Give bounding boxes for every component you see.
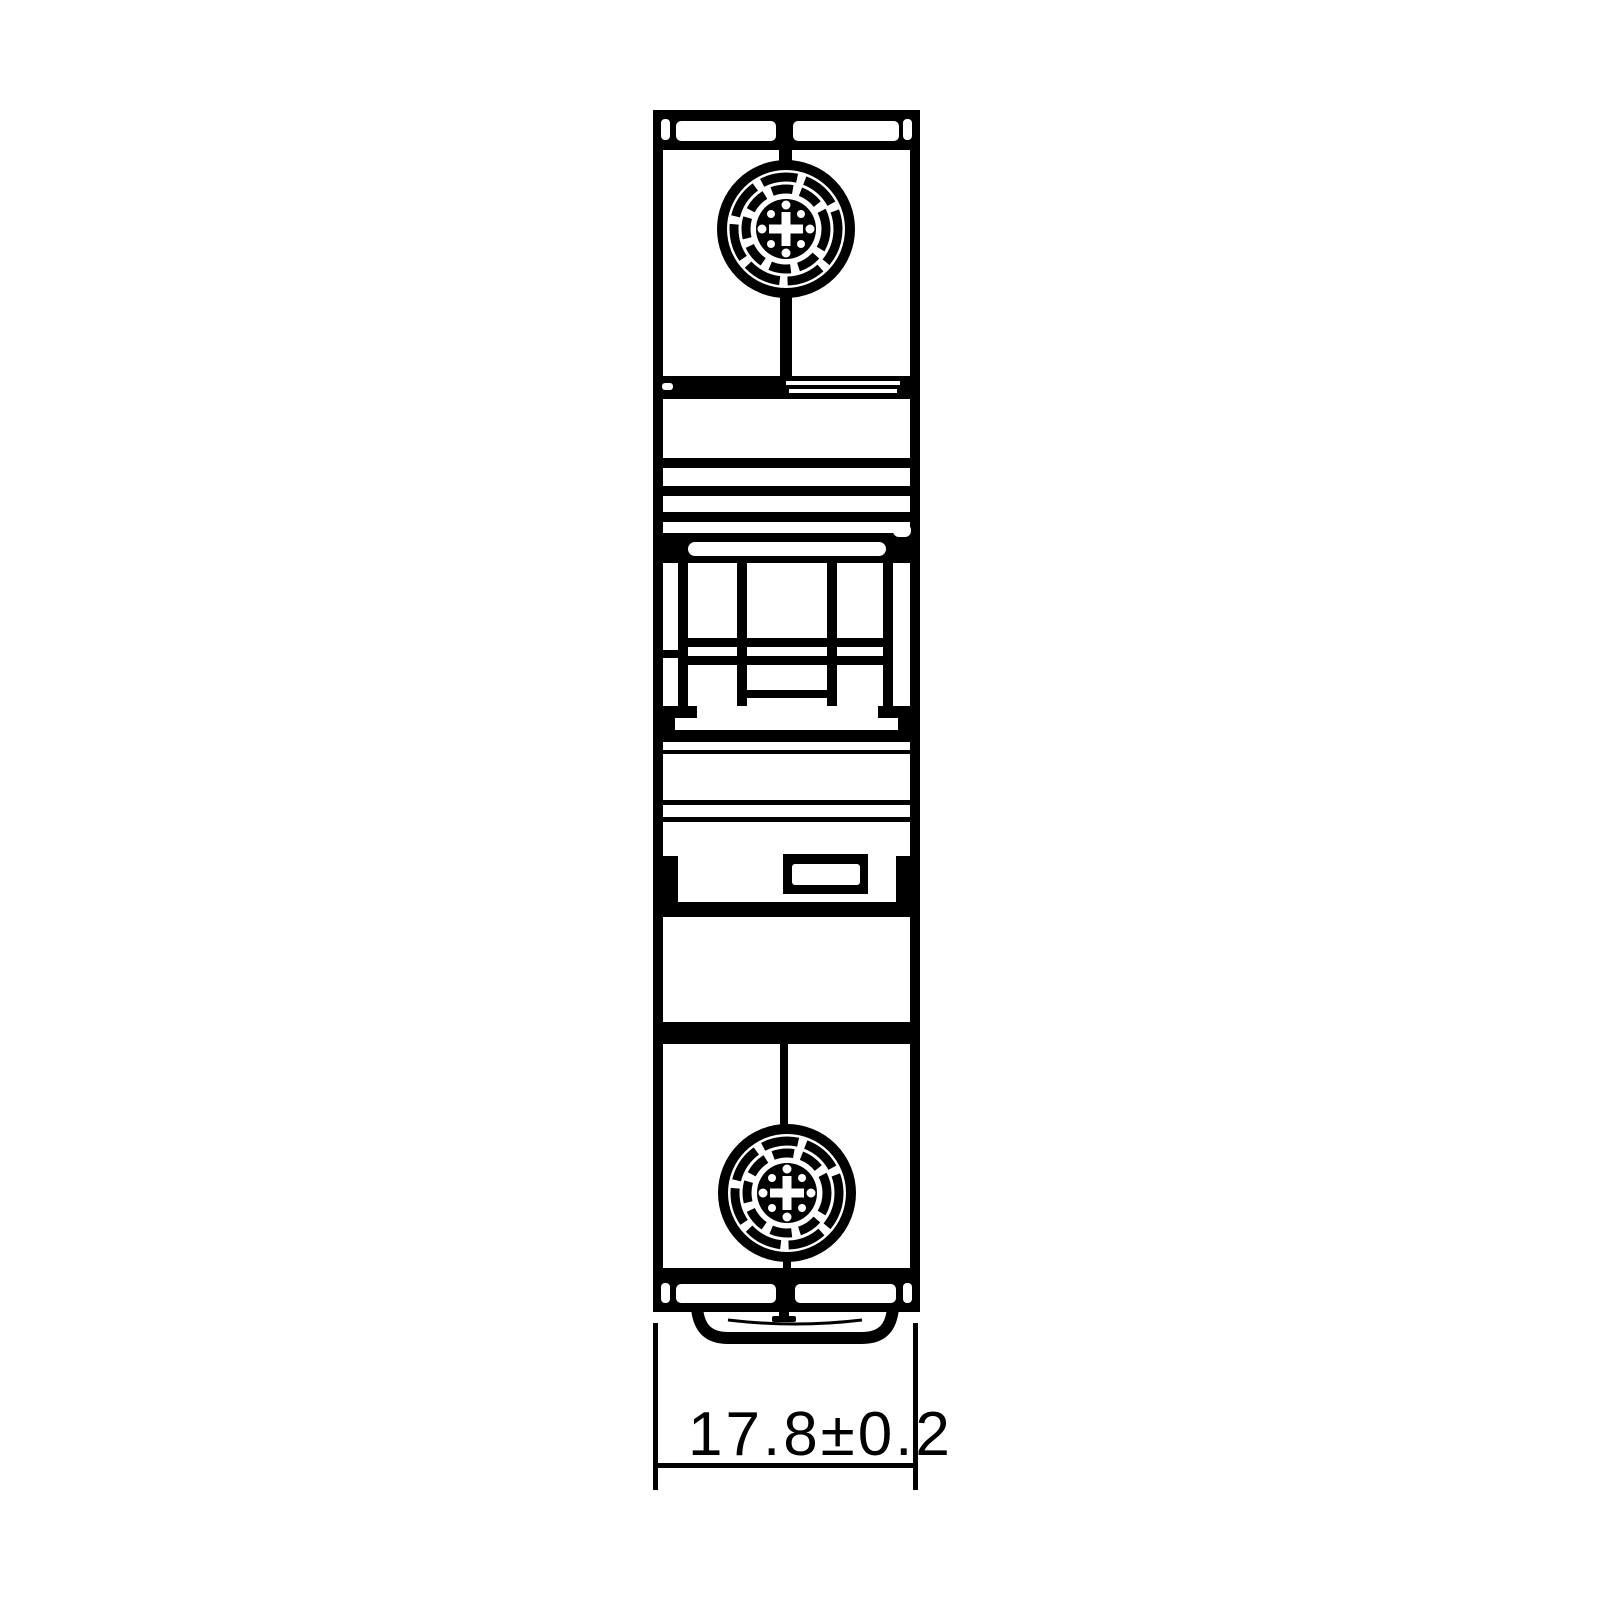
ventilation-ribs	[653, 458, 920, 522]
breaker-front-view-drawing: 17.8±0.2	[0, 0, 1600, 1600]
bottom-terminal-conductor-line	[780, 1044, 788, 1128]
drawing-canvas: 17.8±0.2	[0, 0, 1600, 1600]
dimension-text: 17.8±0.2	[688, 1400, 953, 1469]
top-terminal-conductor-line	[780, 295, 792, 379]
upper-divider-band	[653, 376, 920, 399]
lower-divider-band	[653, 1022, 920, 1044]
